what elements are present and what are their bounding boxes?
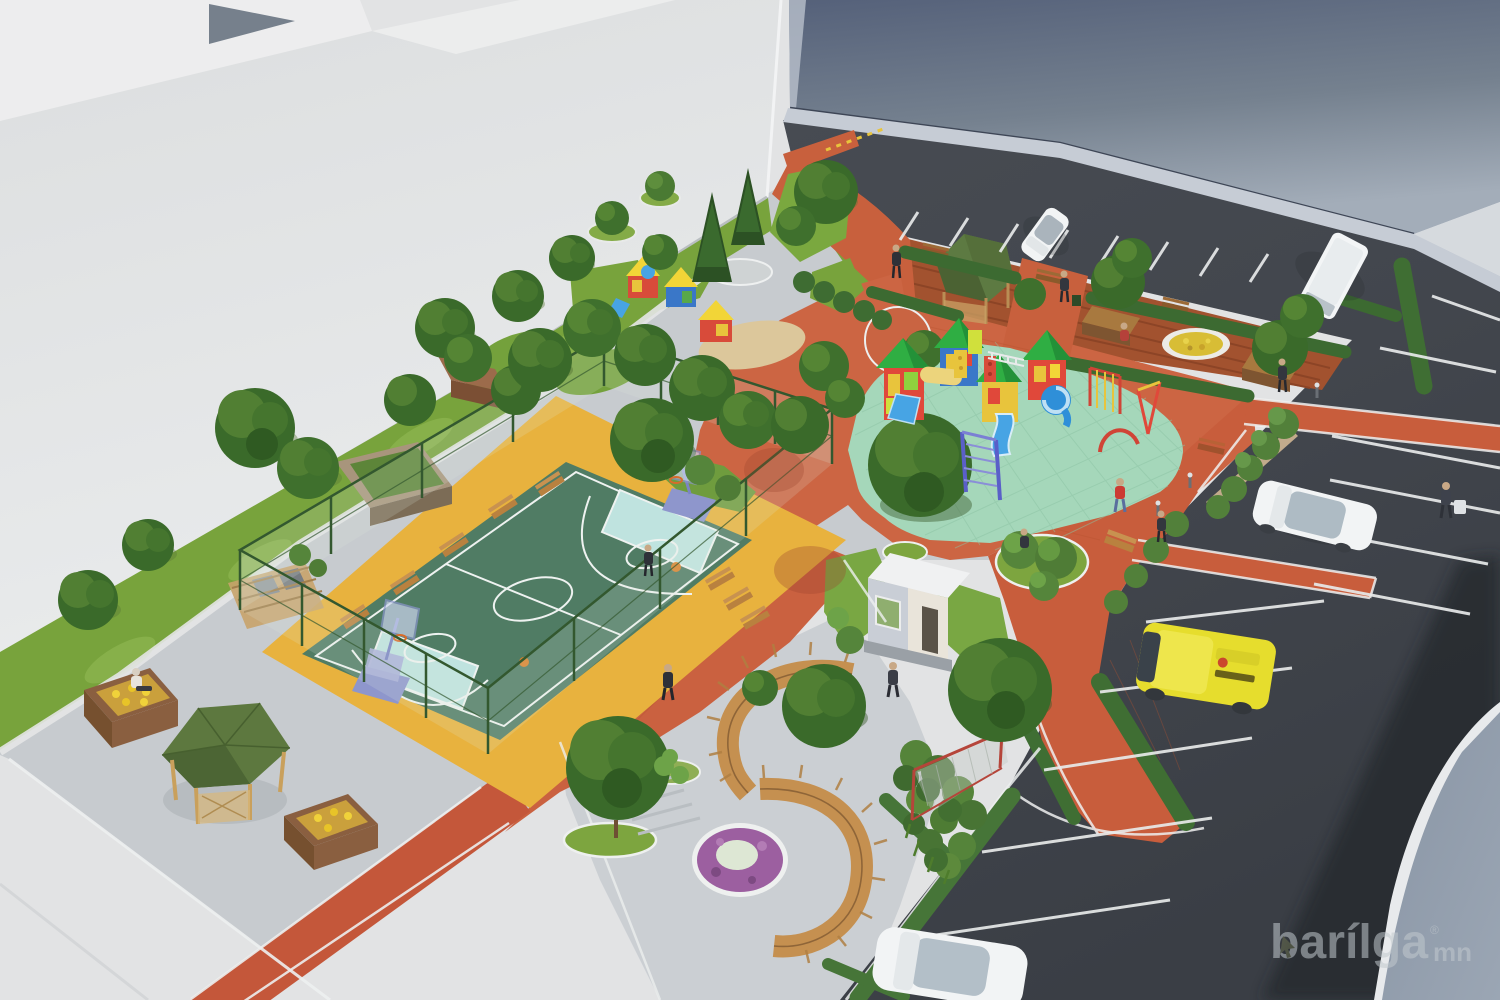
svg-text:mn: mn	[1433, 937, 1472, 967]
svg-text:barílga: barílga	[1270, 916, 1428, 969]
svg-text:®: ®	[1430, 923, 1439, 937]
